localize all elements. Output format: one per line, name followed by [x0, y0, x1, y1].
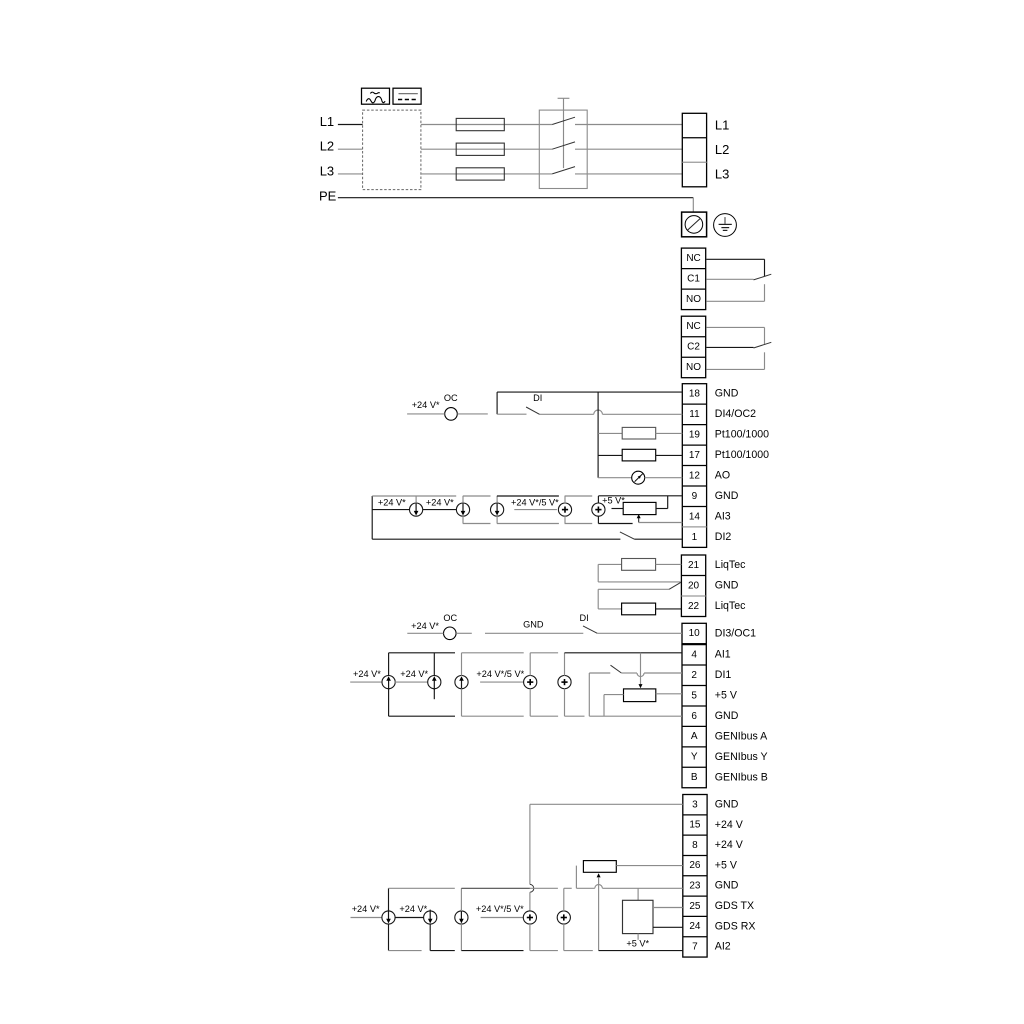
svg-text:AI1: AI1 — [715, 649, 731, 661]
svg-text:NO: NO — [686, 294, 701, 305]
svg-text:+24 V*/5 V*: +24 V*/5 V* — [511, 497, 559, 507]
svg-text:11: 11 — [689, 409, 700, 420]
svg-text:+24 V*: +24 V* — [412, 400, 440, 410]
svg-text:GENIbus A: GENIbus A — [715, 730, 768, 742]
svg-text:C2: C2 — [687, 342, 700, 353]
svg-text:+24 V*: +24 V* — [352, 904, 380, 914]
svg-text:GDS RX: GDS RX — [715, 920, 756, 932]
svg-text:Y: Y — [691, 752, 698, 763]
svg-text:NC: NC — [686, 253, 700, 264]
svg-text:+24 V*/5 V*: +24 V*/5 V* — [476, 669, 524, 679]
svg-text:L1: L1 — [320, 114, 334, 129]
svg-text:DI1: DI1 — [715, 669, 732, 681]
svg-text:22: 22 — [688, 601, 700, 612]
svg-text:+24 V*: +24 V* — [426, 497, 454, 507]
svg-text:2: 2 — [691, 670, 697, 681]
svg-text:AI2: AI2 — [715, 941, 731, 953]
svg-text:GND: GND — [715, 798, 739, 810]
svg-text:4: 4 — [691, 649, 697, 660]
svg-text:26: 26 — [689, 860, 701, 871]
svg-text:GENIbus B: GENIbus B — [715, 771, 768, 783]
svg-text:B: B — [691, 772, 698, 783]
svg-text:+5 V: +5 V — [715, 690, 738, 702]
svg-text:NC: NC — [686, 321, 700, 332]
svg-text:+24 V*/5 V*: +24 V*/5 V* — [476, 904, 524, 914]
svg-text:15: 15 — [689, 820, 701, 831]
svg-text:20: 20 — [688, 580, 700, 591]
svg-text:Pt100/1000: Pt100/1000 — [715, 449, 769, 461]
svg-text:DI4/OC2: DI4/OC2 — [715, 408, 756, 420]
svg-text:+24 V*: +24 V* — [400, 669, 428, 679]
svg-text:19: 19 — [689, 429, 701, 440]
svg-text:23: 23 — [689, 881, 701, 892]
svg-text:1: 1 — [692, 532, 698, 543]
svg-text:GENIbus Y: GENIbus Y — [715, 751, 768, 763]
svg-text:3: 3 — [692, 799, 698, 810]
svg-text:6: 6 — [691, 711, 697, 722]
svg-text:+24 V*: +24 V* — [399, 904, 427, 914]
svg-text:+24 V*: +24 V* — [378, 498, 406, 508]
svg-text:14: 14 — [689, 511, 701, 522]
svg-text:DI2: DI2 — [715, 531, 732, 543]
svg-text:5: 5 — [691, 690, 697, 701]
svg-text:+24 V: +24 V — [715, 839, 744, 851]
svg-text:GND: GND — [715, 490, 739, 502]
svg-text:GND: GND — [715, 880, 739, 892]
svg-text:GND: GND — [715, 710, 739, 722]
svg-text:GDS TX: GDS TX — [715, 900, 754, 912]
svg-text:+5 V*: +5 V* — [626, 939, 649, 949]
svg-text:25: 25 — [689, 901, 701, 912]
svg-text:10: 10 — [689, 628, 701, 639]
svg-text:17: 17 — [689, 450, 701, 461]
svg-text:9: 9 — [692, 491, 698, 502]
svg-text:OC: OC — [443, 613, 457, 623]
svg-text:21: 21 — [688, 560, 700, 571]
svg-text:12: 12 — [689, 470, 701, 481]
svg-text:L3: L3 — [320, 163, 334, 178]
svg-text:+24 V*: +24 V* — [353, 669, 381, 679]
svg-text:+5 V*: +5 V* — [602, 495, 625, 505]
svg-text:AO: AO — [715, 470, 730, 482]
svg-text:24: 24 — [689, 921, 701, 932]
svg-text:A: A — [691, 731, 698, 742]
svg-text:+24 V: +24 V — [715, 819, 744, 831]
svg-text:PE: PE — [319, 188, 337, 203]
svg-text:DI: DI — [533, 393, 542, 403]
svg-text:+24 V*: +24 V* — [411, 621, 439, 631]
svg-text:OC: OC — [444, 393, 458, 403]
svg-text:L3: L3 — [715, 167, 729, 182]
svg-text:L2: L2 — [715, 142, 729, 157]
svg-text:C1: C1 — [687, 273, 700, 284]
svg-text:7: 7 — [692, 942, 698, 953]
svg-text:8: 8 — [692, 840, 698, 851]
svg-text:AI3: AI3 — [715, 510, 731, 522]
svg-text:GND: GND — [715, 580, 739, 592]
svg-text:LiqTec: LiqTec — [715, 559, 746, 571]
svg-text:LiqTec: LiqTec — [715, 600, 746, 612]
svg-text:DI: DI — [580, 613, 589, 623]
svg-text:L2: L2 — [320, 139, 334, 154]
svg-text:+5 V: +5 V — [715, 859, 738, 871]
svg-text:Pt100/1000: Pt100/1000 — [715, 429, 769, 441]
svg-text:DI3/OC1: DI3/OC1 — [715, 627, 756, 639]
svg-text:L1: L1 — [715, 117, 729, 132]
svg-text:GND: GND — [523, 619, 544, 629]
svg-text:NO: NO — [686, 362, 701, 373]
svg-text:GND: GND — [715, 388, 739, 400]
svg-text:18: 18 — [689, 389, 701, 400]
